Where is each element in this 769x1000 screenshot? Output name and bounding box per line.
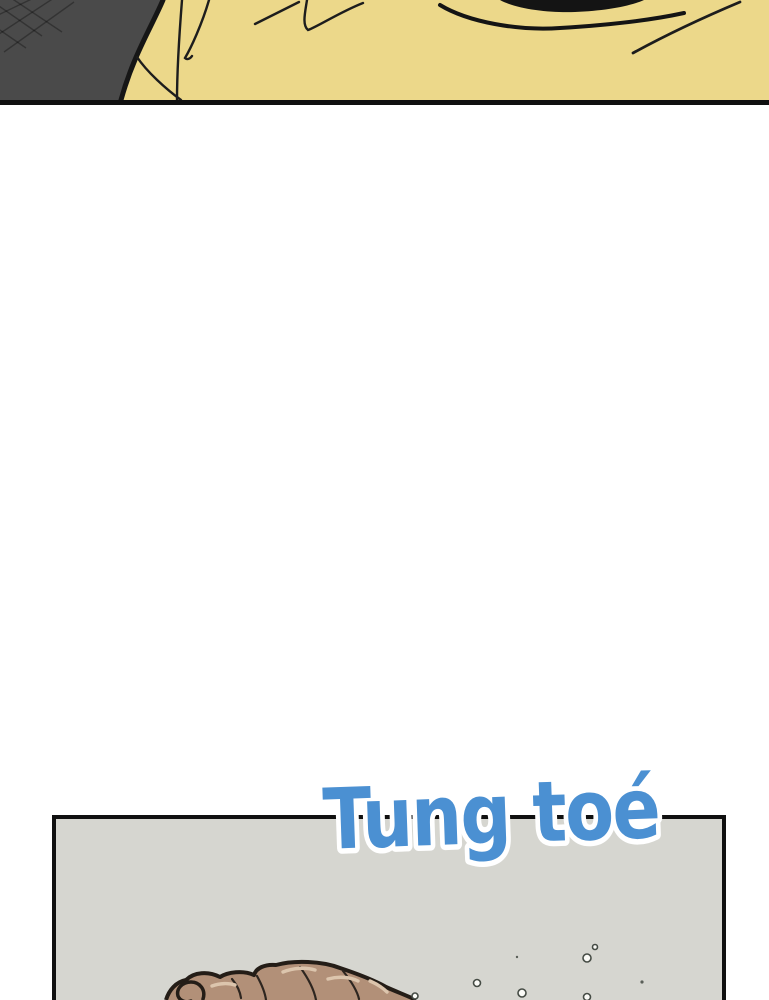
comic-page: Tung toé (0, 0, 769, 1000)
panel-bottom-bath-scene (52, 815, 726, 1000)
panel-top-bottom-border (0, 100, 769, 105)
panel-top-shirt-closeup (0, 0, 769, 105)
